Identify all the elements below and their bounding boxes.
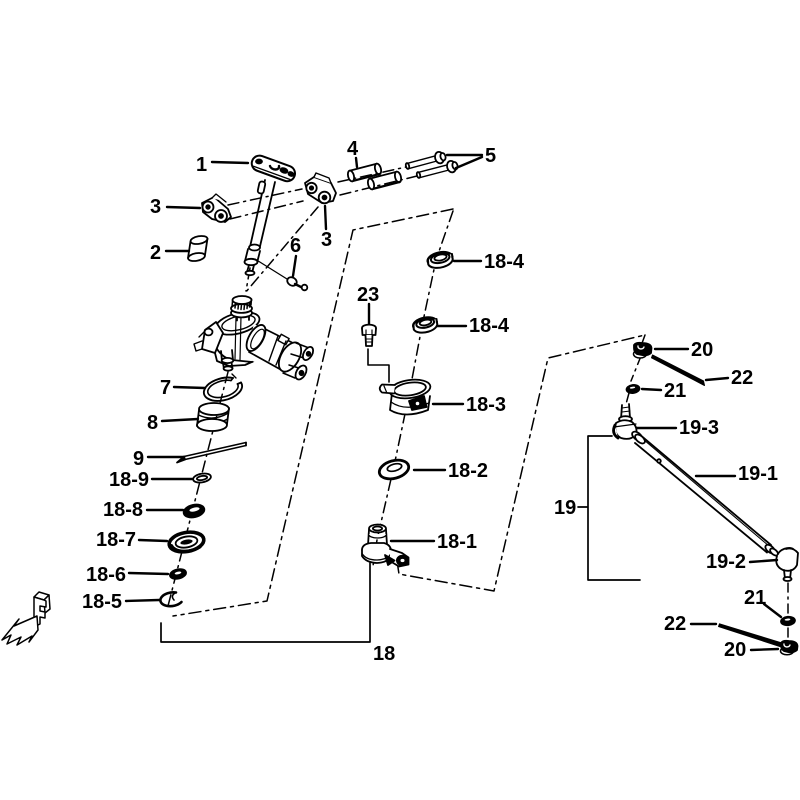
svg-text:18-7: 18-7 xyxy=(96,529,136,551)
svg-text:9: 9 xyxy=(133,448,144,470)
svg-text:19-3: 19-3 xyxy=(679,417,719,439)
svg-text:6: 6 xyxy=(290,235,301,257)
svg-text:5: 5 xyxy=(485,145,496,167)
svg-text:18-2: 18-2 xyxy=(448,460,488,482)
svg-text:19-2: 19-2 xyxy=(706,551,746,573)
svg-text:18-4: 18-4 xyxy=(484,251,525,273)
svg-text:1: 1 xyxy=(196,154,207,176)
svg-text:20: 20 xyxy=(724,639,746,661)
svg-text:18-6: 18-6 xyxy=(86,564,126,586)
svg-text:18-3: 18-3 xyxy=(466,394,506,416)
svg-text:18-5: 18-5 xyxy=(82,591,122,613)
svg-text:19-1: 19-1 xyxy=(738,463,778,485)
svg-text:19: 19 xyxy=(554,497,576,519)
svg-text:22: 22 xyxy=(664,613,686,635)
svg-text:20: 20 xyxy=(691,339,713,361)
svg-text:3: 3 xyxy=(321,229,332,251)
svg-text:3: 3 xyxy=(150,196,161,218)
svg-text:18-1: 18-1 xyxy=(437,531,477,553)
svg-text:18-9: 18-9 xyxy=(109,469,149,491)
svg-text:2: 2 xyxy=(150,242,161,264)
svg-text:22: 22 xyxy=(731,367,753,389)
svg-text:18-8: 18-8 xyxy=(103,499,143,521)
svg-text:18: 18 xyxy=(373,643,395,665)
svg-text:7: 7 xyxy=(160,377,171,399)
svg-text:23: 23 xyxy=(357,284,379,306)
svg-text:8: 8 xyxy=(147,412,158,434)
svg-text:21: 21 xyxy=(744,587,766,609)
svg-text:4: 4 xyxy=(347,138,359,160)
svg-text:21: 21 xyxy=(664,380,686,402)
svg-text:18-4: 18-4 xyxy=(469,315,510,337)
